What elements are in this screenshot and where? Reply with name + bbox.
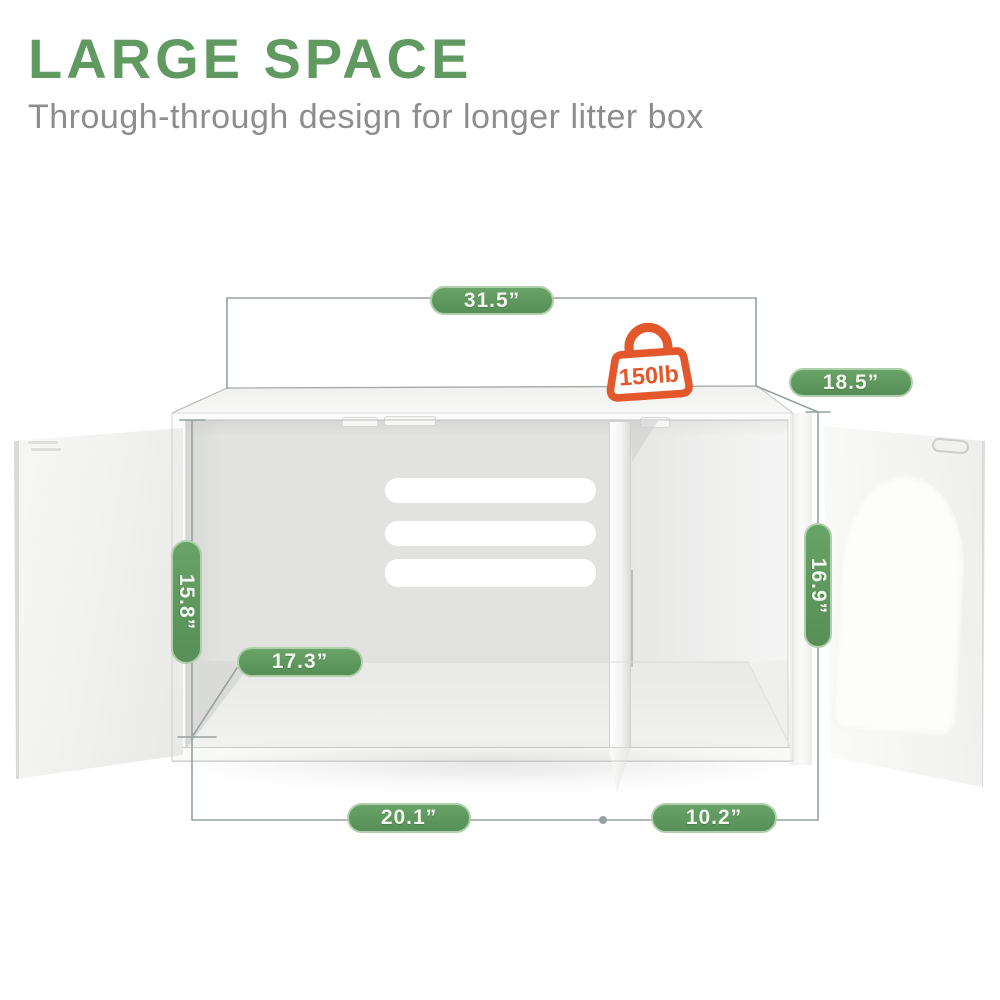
right-height-dimension-badge: 16.9”: [804, 523, 832, 648]
dimension-label: 15.8”: [175, 574, 199, 630]
width-dimension-badge: 31.5”: [430, 286, 554, 315]
dimension-label: 20.1”: [381, 806, 437, 830]
depth-dimension-badge: 18.5”: [789, 368, 913, 397]
dimension-label: 18.5”: [823, 371, 879, 395]
capacity-label: 150lb: [618, 360, 680, 390]
dimension-label: 10.2”: [686, 806, 742, 830]
dimension-label: 31.5”: [464, 289, 520, 313]
dimension-label: 17.3”: [272, 650, 328, 674]
dimension-lines: [0, 0, 1000, 1000]
weight-capacity-bag-icon: 150lb: [592, 300, 705, 411]
dimension-label: 16.9”: [806, 557, 830, 613]
segment-divider-dot: [599, 816, 607, 824]
right-compartment-dimension-badge: 10.2”: [651, 803, 777, 833]
left-compartment-dimension-badge: 20.1”: [347, 803, 471, 833]
left-height-dimension-badge: 15.8”: [171, 540, 202, 664]
interior-depth-dimension-badge: 17.3”: [237, 647, 363, 677]
product-infographic: LARGE SPACE Through-through design for l…: [0, 0, 1000, 1000]
